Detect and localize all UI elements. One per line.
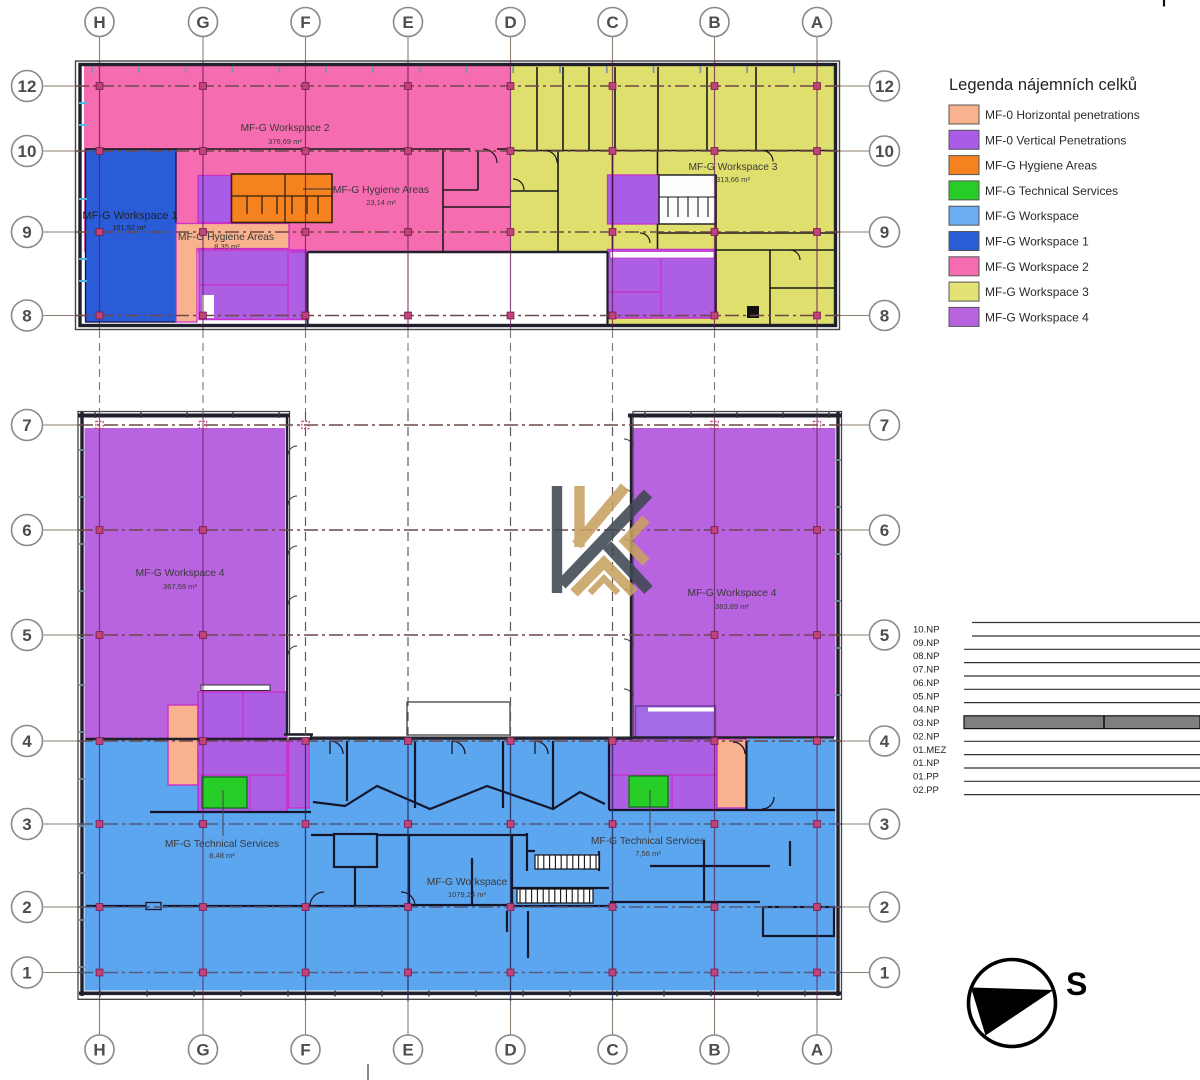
svg-text:MF-G Workspace 4: MF-G Workspace 4 xyxy=(135,568,224,579)
svg-text:06.NP: 06.NP xyxy=(913,678,939,689)
svg-text:6: 6 xyxy=(880,521,889,540)
svg-text:101,52 m²: 101,52 m² xyxy=(112,223,146,232)
svg-text:E: E xyxy=(402,13,413,32)
svg-text:7,56 m²: 7,56 m² xyxy=(635,849,661,858)
svg-text:H: H xyxy=(93,1041,105,1060)
svg-text:10: 10 xyxy=(18,142,37,161)
svg-text:MF-0 Horizontal penetrations: MF-0 Horizontal penetrations xyxy=(985,108,1140,122)
svg-text:7: 7 xyxy=(22,416,31,435)
svg-text:G: G xyxy=(196,13,209,32)
svg-text:S: S xyxy=(1066,966,1087,1002)
svg-text:MF-G Workspace 2: MF-G Workspace 2 xyxy=(985,260,1089,274)
svg-text:A: A xyxy=(811,1041,823,1060)
svg-text:3: 3 xyxy=(22,815,31,834)
svg-text:C: C xyxy=(606,1041,618,1060)
svg-text:Legenda nájemních celků: Legenda nájemních celků xyxy=(949,76,1137,94)
svg-text:F: F xyxy=(300,1041,310,1060)
svg-text:MF-G Workspace 2: MF-G Workspace 2 xyxy=(240,123,329,134)
svg-text:MF-G Workspace 1: MF-G Workspace 1 xyxy=(985,235,1089,249)
svg-text:04.NP: 04.NP xyxy=(913,705,939,716)
svg-text:B: B xyxy=(708,1041,720,1060)
svg-text:4: 4 xyxy=(880,732,890,751)
svg-text:7: 7 xyxy=(880,416,889,435)
svg-text:03.NP: 03.NP xyxy=(913,718,939,729)
svg-text:1: 1 xyxy=(880,964,889,983)
svg-text:12: 12 xyxy=(18,77,37,96)
svg-text:MF-G Workspace: MF-G Workspace xyxy=(985,209,1079,223)
svg-text:12: 12 xyxy=(875,77,894,96)
svg-text:MF-0 Vertical Penetrations: MF-0 Vertical Penetrations xyxy=(985,133,1126,147)
svg-text:02.NP: 02.NP xyxy=(913,731,939,742)
svg-text:05.NP: 05.NP xyxy=(913,691,939,702)
svg-text:MF-G Hygiene Areas: MF-G Hygiene Areas xyxy=(333,185,429,196)
svg-text:5: 5 xyxy=(880,626,889,645)
svg-text:8: 8 xyxy=(22,307,31,326)
svg-text:8: 8 xyxy=(880,307,889,326)
svg-text:MF-G Technical Services: MF-G Technical Services xyxy=(591,836,705,847)
svg-text:MF-G Workspace 4: MF-G Workspace 4 xyxy=(687,588,776,599)
svg-text:2: 2 xyxy=(880,898,889,917)
svg-text:10.NP: 10.NP xyxy=(913,625,939,636)
svg-text:H: H xyxy=(93,13,105,32)
svg-text:313,66 m²: 313,66 m² xyxy=(716,175,750,184)
svg-text:E: E xyxy=(402,1041,413,1060)
svg-text:02.PP: 02.PP xyxy=(913,785,939,796)
svg-text:MF-G Hygiene Areas: MF-G Hygiene Areas xyxy=(985,159,1097,173)
svg-text:8,48 m²: 8,48 m² xyxy=(209,851,235,860)
svg-text:MF-G Workspace 4: MF-G Workspace 4 xyxy=(985,310,1089,324)
svg-text:6: 6 xyxy=(22,521,31,540)
svg-text:09.NP: 09.NP xyxy=(913,638,939,649)
svg-text:MF-G Workspace: MF-G Workspace xyxy=(427,877,508,888)
svg-text:5: 5 xyxy=(22,626,31,645)
svg-text:10: 10 xyxy=(875,142,894,161)
svg-text:3: 3 xyxy=(880,815,889,834)
svg-text:MF-G Workspace 3: MF-G Workspace 3 xyxy=(688,162,777,173)
svg-text:MF-G Workspace 3: MF-G Workspace 3 xyxy=(985,285,1089,299)
svg-text:G: G xyxy=(196,1041,209,1060)
svg-text:1079,24 m²: 1079,24 m² xyxy=(448,890,486,899)
svg-text:08.NP: 08.NP xyxy=(913,651,939,662)
svg-text:383,89 m²: 383,89 m² xyxy=(715,602,749,611)
svg-text:01.MEZ: 01.MEZ xyxy=(913,745,946,756)
svg-text:C: C xyxy=(606,13,618,32)
svg-text:D: D xyxy=(504,1041,516,1060)
svg-text:8,35 m²: 8,35 m² xyxy=(214,242,240,251)
svg-text:1: 1 xyxy=(22,964,31,983)
svg-text:B: B xyxy=(708,13,720,32)
svg-text:D: D xyxy=(504,13,516,32)
svg-text:07.NP: 07.NP xyxy=(913,665,939,676)
svg-text:4: 4 xyxy=(22,732,32,751)
svg-text:2: 2 xyxy=(22,898,31,917)
svg-text:9: 9 xyxy=(880,223,889,242)
svg-text:MF-G Workspace 1: MF-G Workspace 1 xyxy=(82,210,177,222)
svg-text:MF-G Technical Services: MF-G Technical Services xyxy=(985,184,1118,198)
svg-text:MF-G Technical Services: MF-G Technical Services xyxy=(165,839,279,850)
svg-text:376,69 m²: 376,69 m² xyxy=(268,137,302,146)
svg-text:01.NP: 01.NP xyxy=(913,758,939,769)
svg-text:A: A xyxy=(811,13,823,32)
svg-text:F: F xyxy=(300,13,310,32)
svg-text:23,14 m²: 23,14 m² xyxy=(366,198,396,207)
svg-text:367,59 m²: 367,59 m² xyxy=(163,582,197,591)
svg-text:9: 9 xyxy=(22,223,31,242)
svg-text:01.PP: 01.PP xyxy=(913,772,939,783)
